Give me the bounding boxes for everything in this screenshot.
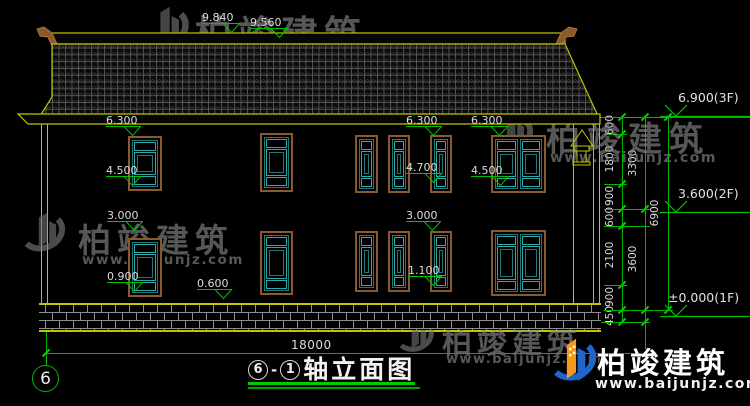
window-panel-top bbox=[134, 244, 156, 253]
window-lattice-column bbox=[520, 234, 543, 292]
window-panel-inner bbox=[397, 154, 401, 174]
window-panel-top bbox=[394, 141, 404, 150]
window-panel-inner bbox=[364, 154, 369, 174]
window-panel-bot bbox=[522, 178, 541, 187]
elevation-drawing-canvas: 18000 6 6 - 1 轴立面图 柏竣建筑 www.baijunjz.com… bbox=[0, 0, 750, 406]
window-panel-bot bbox=[394, 178, 404, 187]
window-l4 bbox=[388, 231, 410, 292]
window-lattice-column bbox=[495, 234, 518, 292]
window-panel-bot bbox=[266, 177, 287, 186]
window-panel-mid bbox=[361, 247, 372, 276]
drawing-title-block: 6 - 1 轴立面图 bbox=[248, 357, 415, 382]
window-panel-mid bbox=[266, 247, 287, 279]
window-panel-inner bbox=[137, 257, 153, 278]
window-panel-inner bbox=[397, 250, 401, 273]
drawing-title: 轴立面图 bbox=[303, 357, 415, 382]
window-panel-mid bbox=[522, 151, 541, 177]
window-panel-top bbox=[266, 237, 287, 246]
window-lattice-column bbox=[264, 235, 289, 291]
window-panel-top bbox=[497, 141, 516, 150]
window-panel-inner bbox=[269, 250, 284, 276]
window-panel-inner bbox=[500, 249, 513, 277]
axis-bubble-end: 1 bbox=[280, 360, 300, 380]
title-underline-thick bbox=[248, 382, 415, 385]
title-underline-thin bbox=[248, 387, 420, 389]
window-panel-mid bbox=[266, 149, 287, 176]
window-panel-inner bbox=[269, 152, 284, 173]
window-panel-top bbox=[394, 237, 404, 246]
window-panel-inner bbox=[439, 154, 443, 174]
window-lattice-column bbox=[520, 139, 543, 189]
window-panel-inner bbox=[525, 154, 538, 174]
window-u2 bbox=[260, 133, 293, 192]
window-panel-bot bbox=[361, 277, 372, 286]
watermark-url: www.baijunjz.com bbox=[595, 376, 750, 392]
corner-bracket-ornament bbox=[571, 130, 593, 165]
window-panel-top bbox=[522, 141, 541, 150]
brand-logo bbox=[550, 334, 596, 394]
watermark-brand-color: 柏竣建筑 www.baijunjz.com bbox=[550, 334, 750, 398]
window-l3 bbox=[355, 231, 378, 292]
window-panel-inner bbox=[137, 155, 153, 172]
grid-bubble-6: 6 bbox=[32, 365, 59, 392]
window-panel-top bbox=[497, 236, 516, 245]
roof-ridge bbox=[52, 33, 565, 44]
window-panel-bot bbox=[266, 280, 287, 289]
axis-bubble-start: 6 bbox=[248, 360, 268, 380]
window-panel-mid bbox=[394, 151, 404, 177]
window-panel-top bbox=[522, 236, 541, 245]
window-panel-inner bbox=[364, 250, 369, 273]
window-panel-inner bbox=[439, 250, 443, 273]
window-lattice-column bbox=[359, 139, 374, 189]
window-lattice-column bbox=[264, 137, 289, 188]
window-panel-mid bbox=[522, 246, 541, 280]
window-panel-top bbox=[436, 237, 446, 246]
plinth-bricks bbox=[39, 305, 601, 330]
overall-dim-label: 18000 bbox=[291, 338, 332, 352]
window-panel-bot bbox=[497, 281, 516, 290]
window-panel-mid bbox=[394, 247, 404, 276]
window-lattice-column bbox=[392, 139, 406, 189]
window-lattice-column bbox=[359, 235, 374, 288]
window-panel-top bbox=[361, 141, 372, 150]
window-panel-top bbox=[266, 139, 287, 148]
window-l6 bbox=[491, 230, 546, 296]
window-u3 bbox=[355, 135, 378, 193]
window-panel-top bbox=[361, 237, 372, 246]
window-panel-bot bbox=[522, 281, 541, 290]
window-panel-mid bbox=[497, 246, 516, 280]
window-lattice-column bbox=[392, 235, 406, 288]
window-panel-top bbox=[436, 141, 446, 150]
window-panel-inner bbox=[525, 249, 538, 277]
window-panel-top bbox=[134, 142, 156, 151]
window-l2 bbox=[260, 231, 293, 295]
window-panel-mid bbox=[361, 151, 372, 177]
window-panel-bot bbox=[361, 178, 372, 187]
roof-tiles bbox=[40, 44, 598, 116]
axis-separator: - bbox=[271, 361, 277, 379]
window-panel-bot bbox=[394, 277, 404, 286]
